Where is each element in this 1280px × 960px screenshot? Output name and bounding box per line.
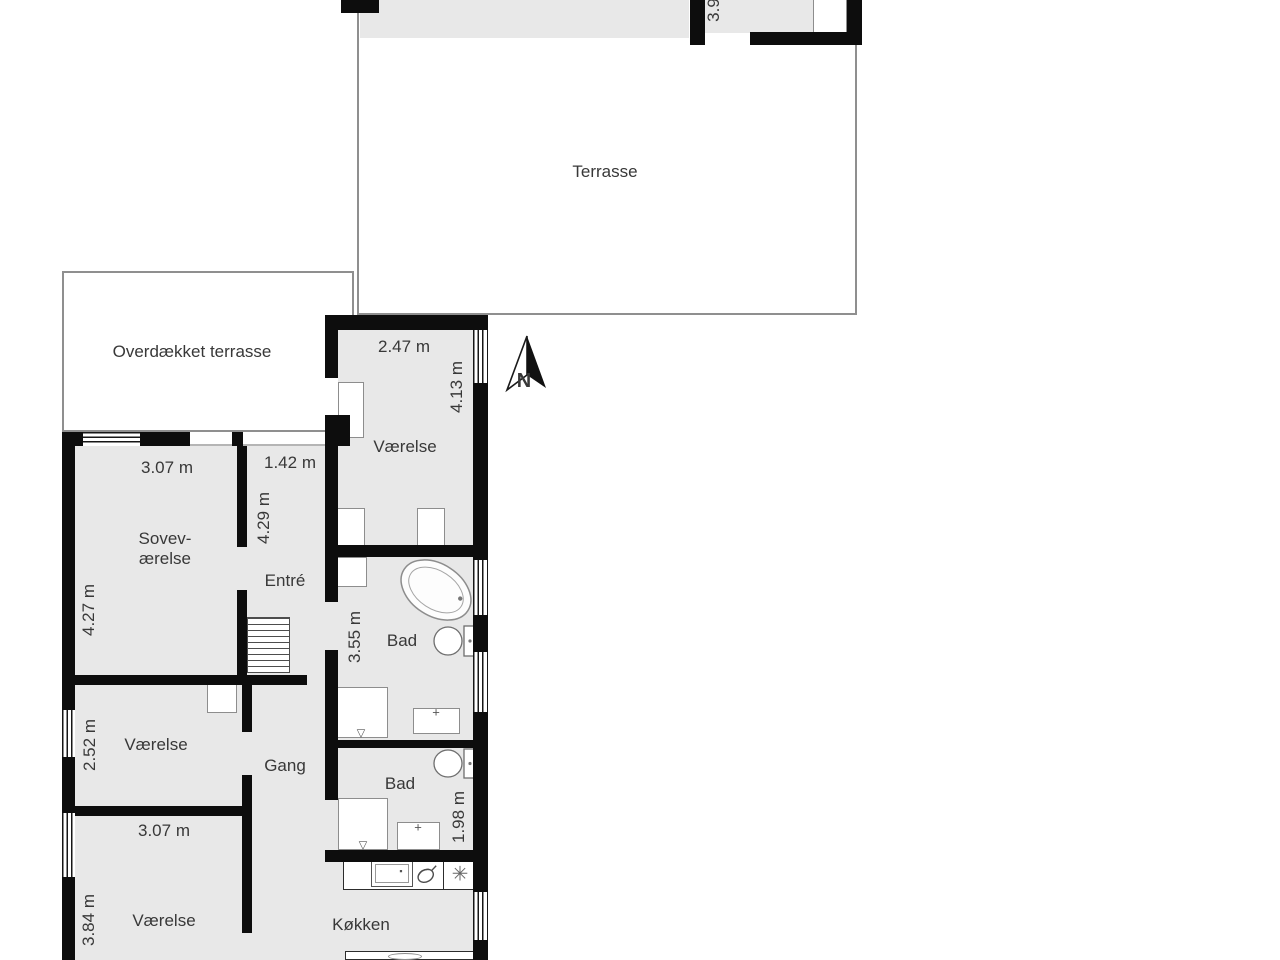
- floor-plan-canvas: ▽ + ▽ + ▪ ✳: [0, 0, 1280, 960]
- wall: [473, 712, 488, 892]
- staircase: [247, 617, 290, 673]
- terrasse-area: [357, 0, 857, 315]
- wall: [237, 590, 247, 683]
- wardrobe: [417, 508, 445, 548]
- entre-label: Entré: [265, 571, 306, 591]
- toilet-icon: [432, 748, 478, 779]
- wall: [690, 0, 705, 45]
- north-label: N: [517, 371, 531, 391]
- entre-depth: 4.29 m: [254, 492, 274, 544]
- pot-icon: [414, 862, 440, 886]
- wall: [750, 32, 862, 45]
- shower-drain-icon: ▽: [357, 727, 365, 740]
- sovevaerelse-label: Sovev- ærelse: [139, 529, 192, 569]
- wall: [325, 850, 488, 862]
- bath1-cabinet: [335, 557, 367, 587]
- door-opening: [190, 432, 232, 446]
- window: [62, 813, 75, 877]
- overdaekket-terrasse-label: Overdækket terrasse: [113, 342, 272, 362]
- gang-label: Gang: [264, 756, 306, 776]
- vaerelse-sw-label: Værelse: [132, 911, 195, 931]
- wall: [62, 757, 75, 813]
- wall: [325, 315, 488, 330]
- wall: [847, 0, 862, 45]
- toilet-icon: [432, 625, 478, 657]
- wall: [325, 650, 338, 800]
- bathtub-icon: [395, 551, 477, 629]
- window: [62, 710, 75, 757]
- sovevaerelse-label-line2: ærelse: [139, 549, 191, 568]
- vaerelse-ne-label: Værelse: [373, 437, 436, 457]
- closet: [207, 682, 237, 713]
- wall: [325, 315, 338, 378]
- wall: [62, 675, 307, 685]
- top-room-dim: 3.9: [704, 0, 724, 22]
- sink-tap-icon: +: [432, 705, 440, 720]
- sink-tap-icon: +: [414, 820, 422, 835]
- wall: [62, 806, 242, 816]
- sovevaerelse-depth: 4.27 m: [79, 584, 99, 636]
- wall: [140, 432, 190, 446]
- vaerelse-mid-depth: 2.52 m: [80, 719, 100, 771]
- wall: [242, 683, 252, 732]
- wall: [62, 432, 75, 710]
- bad2-depth: 1.98 m: [449, 791, 469, 843]
- wall: [242, 775, 252, 933]
- wall: [338, 740, 473, 748]
- terrasse-label: Terrasse: [572, 162, 637, 182]
- entre-width: 1.42 m: [264, 453, 316, 473]
- vaerelse-ne-depth: 4.13 m: [447, 361, 467, 413]
- kitchen-tap-icon: ▪: [399, 866, 402, 876]
- wardrobe: [337, 508, 365, 548]
- bad1-label: Bad: [387, 631, 417, 651]
- wall: [473, 940, 488, 960]
- wall: [325, 435, 338, 602]
- window: [473, 560, 488, 615]
- koekken-label: Køkken: [332, 915, 390, 935]
- kitchen-sink-basin: [375, 864, 409, 883]
- wall: [341, 0, 379, 13]
- bad2-label: Bad: [385, 774, 415, 794]
- sovevaerelse-width: 3.07 m: [141, 458, 193, 478]
- vaerelse-sw-depth: 3.84 m: [79, 894, 99, 946]
- island-sink: [388, 953, 422, 960]
- sovevaerelse-label-line1: Sovev-: [139, 529, 192, 548]
- window: [473, 892, 488, 940]
- wall: [325, 545, 488, 557]
- wall: [62, 877, 75, 960]
- upper-building-floor-cut: [360, 0, 689, 38]
- window: [83, 432, 140, 446]
- vaerelse-sw-width: 3.07 m: [138, 821, 190, 841]
- hob-burners-icon: ✳: [452, 862, 469, 887]
- entrance-opening: [243, 432, 325, 446]
- wall: [473, 383, 488, 560]
- top-right-room-cabinet: [813, 0, 847, 33]
- window: [473, 330, 488, 383]
- window: [473, 652, 488, 712]
- bad1-depth: 3.55 m: [345, 611, 365, 663]
- vaerelse-mid-label: Værelse: [124, 735, 187, 755]
- wall: [473, 615, 488, 652]
- vaerelse-ne-width: 2.47 m: [378, 337, 430, 357]
- wall: [237, 432, 247, 547]
